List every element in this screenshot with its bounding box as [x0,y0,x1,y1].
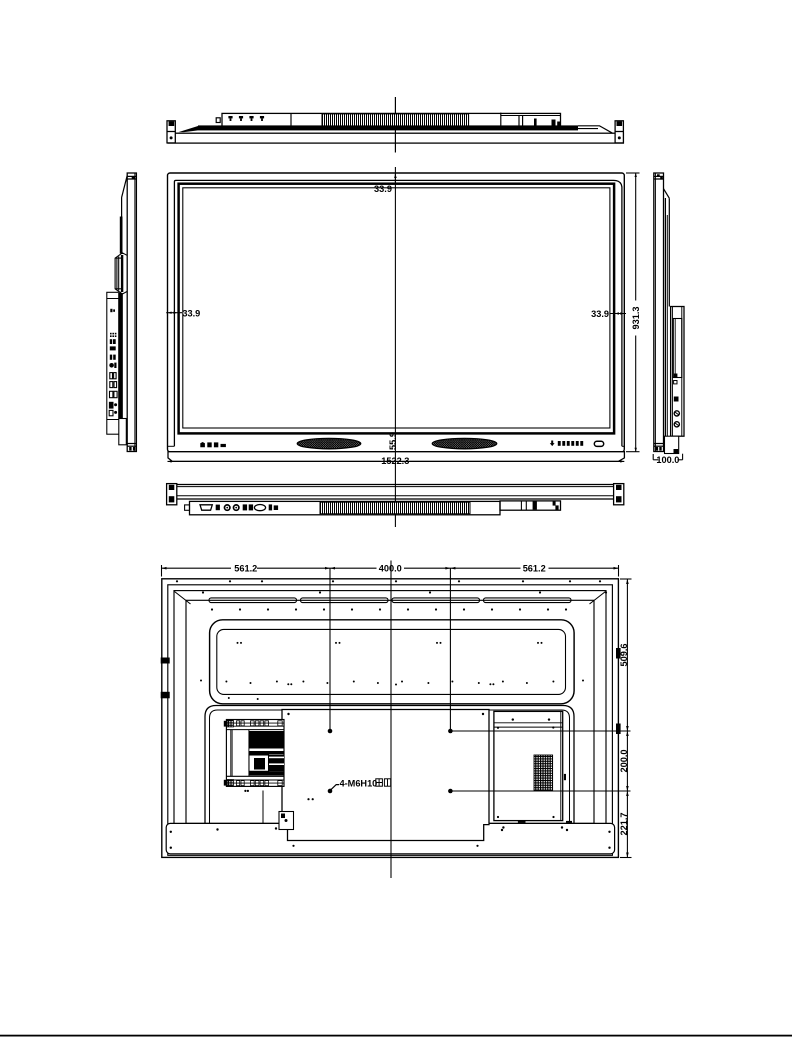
svg-text:200.0: 200.0 [619,750,629,773]
svg-text:33.9: 33.9 [374,184,392,194]
svg-text:509.6: 509.6 [619,644,629,667]
svg-text:33.9: 33.9 [591,309,609,319]
svg-text:561.2: 561.2 [234,564,257,574]
svg-text:931.3: 931.3 [631,307,641,330]
svg-text:4-M6H10: 4-M6H10 [340,778,378,788]
svg-text:33.9: 33.9 [182,308,200,318]
svg-text:55.9: 55.9 [388,432,398,450]
svg-text:100.0: 100.0 [656,455,679,465]
svg-text:221.7: 221.7 [619,813,629,836]
svg-text:400.0: 400.0 [379,564,402,574]
svg-text:1522.3: 1522.3 [381,456,409,466]
svg-text:561.2: 561.2 [523,564,546,574]
